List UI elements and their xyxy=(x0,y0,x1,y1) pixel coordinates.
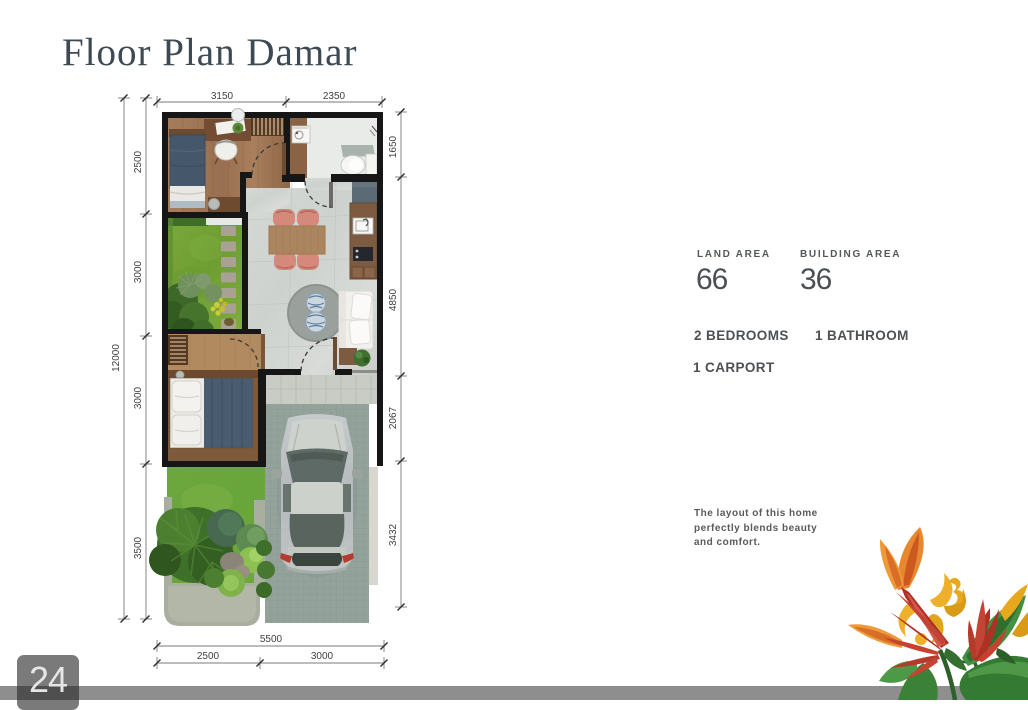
svg-text:3000: 3000 xyxy=(311,651,334,662)
svg-text:4850: 4850 xyxy=(388,288,399,311)
svg-text:2500: 2500 xyxy=(197,651,220,662)
svg-text:12000: 12000 xyxy=(111,344,122,372)
svg-text:2350: 2350 xyxy=(323,91,346,102)
svg-text:1650: 1650 xyxy=(388,135,399,158)
svg-text:3000: 3000 xyxy=(133,260,144,283)
svg-text:5500: 5500 xyxy=(260,634,283,645)
svg-text:2500: 2500 xyxy=(133,150,144,173)
svg-text:3150: 3150 xyxy=(211,91,234,102)
svg-text:3500: 3500 xyxy=(133,536,144,559)
svg-text:3432: 3432 xyxy=(388,523,399,546)
svg-text:2067: 2067 xyxy=(388,406,399,429)
svg-text:3000: 3000 xyxy=(133,386,144,409)
